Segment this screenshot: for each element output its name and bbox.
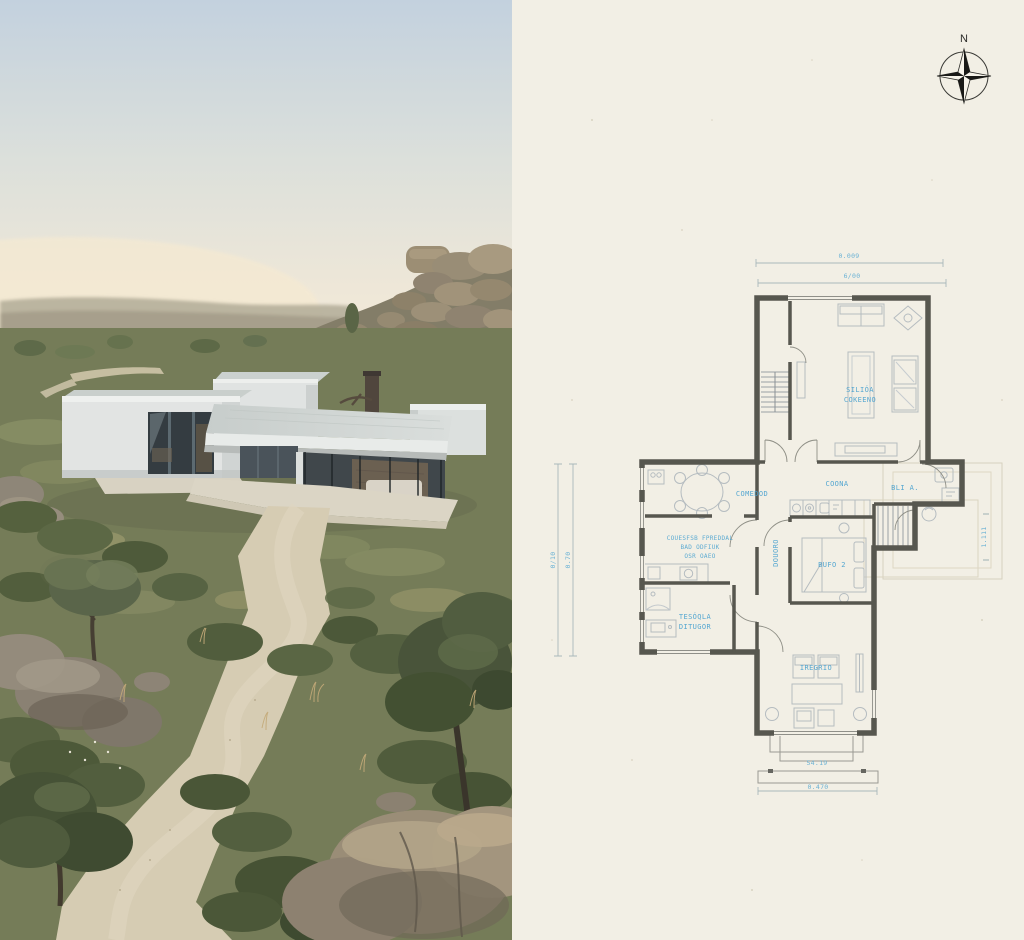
left-window [148,412,214,474]
dim-top-inner: 6/00 [844,272,861,280]
label-comedor: COMEDOD [736,490,768,498]
label-terraza-2: DITUGOR [679,623,712,631]
dim-bottom: 0.470 [807,783,828,791]
label-dorm-1: COUESFSB FPREDDAL [667,535,734,542]
compass-n-label: N [960,33,968,45]
floor-plan: Hand-drafted style floor plan on cream p… [512,0,1024,940]
house-photo: Modern single-storey white concrete hous… [0,0,512,940]
dim-top-outer: 0.009 [838,252,859,260]
label-estudio: IREGRIO [800,664,832,672]
label-cocina: COONA [825,480,848,488]
plan-paper [512,0,1024,940]
label-bano: BLI A. [891,484,919,492]
label-salon-1: SILIÓA [846,385,874,394]
label-pasillo: DOUORO [772,539,780,567]
label-dorm-3: OSR OAEO [684,553,715,560]
dim-right-side: 1.111 [980,526,988,547]
dim-porch: 54.19 [806,759,827,767]
dim-left-inner: 0.70 [564,552,572,569]
label-salon-2: COKEENO [844,396,876,404]
label-dormitorio2: BUFO 2 [818,561,846,569]
photo-panel: Modern single-storey white concrete hous… [0,0,512,940]
label-terraza-1: TESÓQLA [679,612,712,621]
dim-left-outer: 0/10 [549,552,557,569]
floorplan-panel: Hand-drafted style floor plan on cream p… [512,0,1024,940]
label-dorm-2: BAD ODFIUK [680,544,719,551]
stairs-lower [878,506,908,546]
